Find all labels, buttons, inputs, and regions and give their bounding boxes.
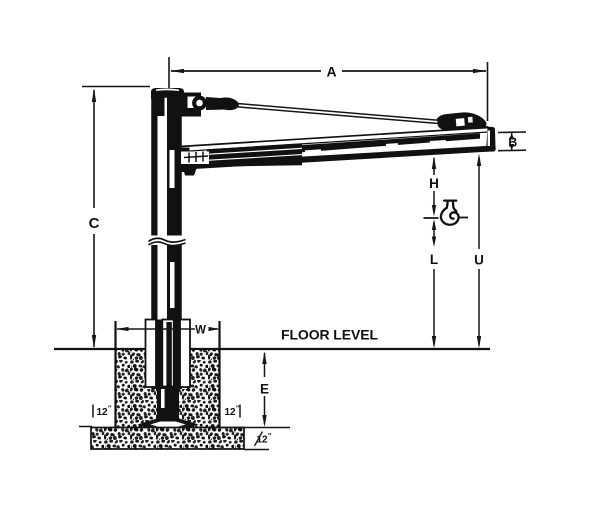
svg-text:A: A [326, 64, 336, 80]
svg-text:12: 12 [225, 407, 237, 418]
svg-text:U: U [474, 253, 484, 268]
svg-text:L: L [430, 252, 438, 267]
svg-text:12: 12 [97, 407, 109, 418]
svg-text:″: ″ [108, 406, 112, 413]
svg-text:C: C [89, 215, 100, 232]
svg-text:E: E [260, 382, 269, 397]
svg-text:W: W [195, 325, 206, 337]
svg-text:″: ″ [268, 433, 272, 440]
svg-text:B: B [508, 136, 517, 150]
svg-text:H: H [429, 176, 439, 191]
svg-text:FLOOR LEVEL: FLOOR LEVEL [281, 327, 378, 343]
